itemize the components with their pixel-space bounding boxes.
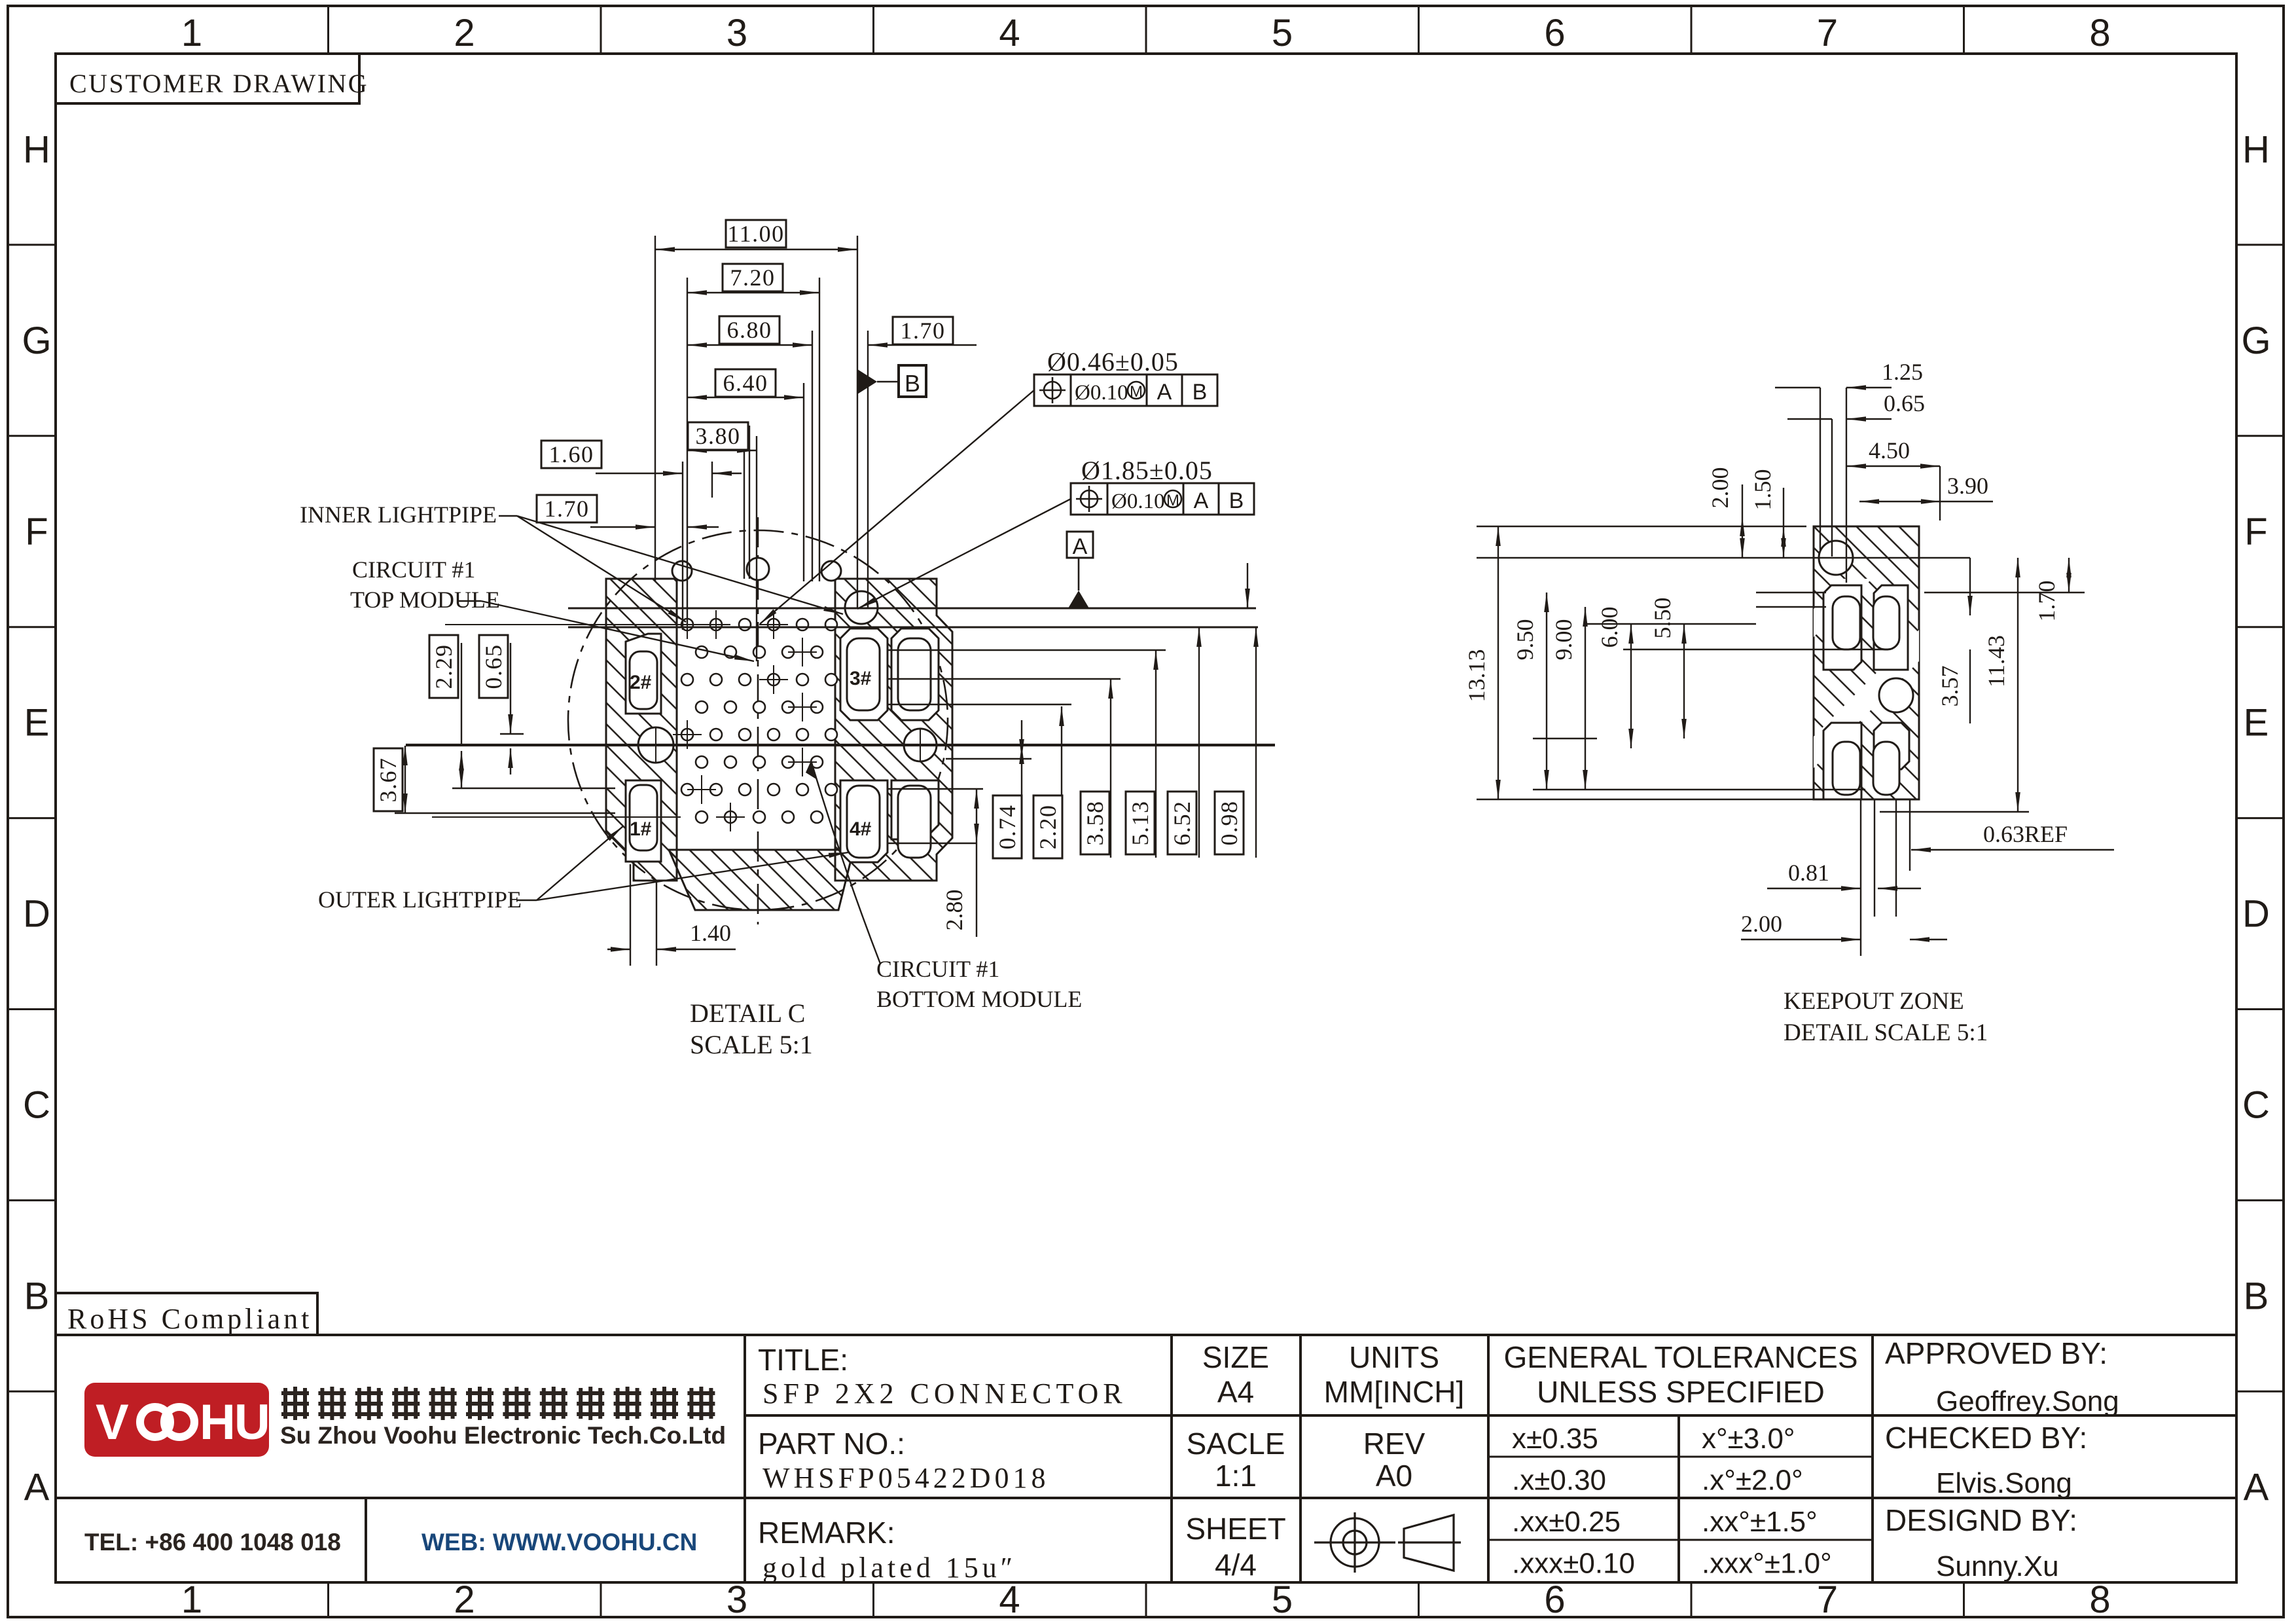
- svg-text:CIRCUIT #1: CIRCUIT #1: [352, 556, 475, 583]
- svg-text:3: 3: [726, 12, 747, 54]
- svg-text:4#: 4#: [850, 818, 872, 840]
- svg-text:B: B: [1229, 488, 1244, 513]
- svg-text:Elvis.Song: Elvis.Song: [1936, 1467, 2072, 1499]
- svg-text:CUSTOMER DRAWING: CUSTOMER DRAWING: [69, 69, 368, 98]
- svg-text:SHEET: SHEET: [1185, 1512, 1285, 1546]
- svg-text:2.29: 2.29: [431, 644, 457, 689]
- svg-text:SCALE 5:1: SCALE 5:1: [690, 1030, 813, 1059]
- svg-text:RoHS Compliant: RoHS Compliant: [67, 1303, 312, 1335]
- svg-text:6: 6: [1544, 12, 1565, 54]
- svg-text:2.20: 2.20: [1035, 805, 1061, 850]
- svg-text:F: F: [25, 511, 48, 553]
- svg-text:9.00: 9.00: [1551, 619, 1577, 661]
- svg-text:3.90: 3.90: [1947, 473, 1988, 499]
- svg-text:E: E: [2244, 702, 2269, 744]
- svg-text:4: 4: [999, 12, 1020, 54]
- svg-text:1.70: 1.70: [545, 496, 590, 522]
- svg-text:SFP 2X2 CONNECTOR: SFP 2X2 CONNECTOR: [762, 1377, 1127, 1410]
- svg-text:A0: A0: [1376, 1459, 1412, 1493]
- svg-text:Geoffrey.Song: Geoffrey.Song: [1936, 1385, 2119, 1417]
- svg-text:CIRCUIT #1: CIRCUIT #1: [876, 956, 999, 982]
- svg-text:2: 2: [454, 12, 475, 54]
- svg-text:x±0.35: x±0.35: [1512, 1423, 1598, 1455]
- svg-text:OUTER LIGHTPIPE: OUTER LIGHTPIPE: [318, 886, 522, 913]
- svg-text:D: D: [2242, 893, 2270, 936]
- svg-text:13.13: 13.13: [1463, 649, 1490, 702]
- svg-text:PART NO.:: PART NO.:: [758, 1427, 905, 1461]
- svg-text:3.57: 3.57: [1937, 666, 1963, 707]
- svg-text:7: 7: [1817, 12, 1838, 54]
- svg-text:A: A: [1194, 488, 1209, 513]
- svg-text:TITLE:: TITLE:: [758, 1343, 848, 1377]
- svg-text:6.40: 6.40: [723, 370, 768, 396]
- svg-text:TEL: +86 400 1048 018: TEL: +86 400 1048 018: [84, 1529, 341, 1556]
- svg-text:x°±3.0°: x°±3.0°: [1702, 1423, 1795, 1455]
- svg-text:.xxx°±1.0°: .xxx°±1.0°: [1702, 1548, 1832, 1580]
- svg-text:2.00: 2.00: [1707, 467, 1733, 509]
- svg-text:Su Zhou Voohu Electronic Tech.: Su Zhou Voohu Electronic Tech.Co.Ltd: [280, 1422, 726, 1449]
- svg-text:WEB: WWW.VOOHU.CN: WEB: WWW.VOOHU.CN: [422, 1529, 697, 1556]
- svg-text:1: 1: [181, 1578, 202, 1621]
- svg-text:SACLE: SACLE: [1187, 1427, 1285, 1461]
- svg-text:M: M: [1130, 383, 1143, 401]
- svg-text:7.20: 7.20: [730, 264, 776, 291]
- svg-text:0.65: 0.65: [480, 644, 507, 689]
- svg-text:DETAIL SCALE 5:1: DETAIL SCALE 5:1: [1784, 1019, 1988, 1046]
- svg-text:Sunny.Xu: Sunny.Xu: [1936, 1550, 2059, 1582]
- svg-text:7: 7: [1817, 1578, 1838, 1621]
- svg-text:G: G: [2241, 319, 2270, 362]
- svg-text:D: D: [23, 893, 50, 936]
- svg-text:SIZE: SIZE: [1202, 1340, 1269, 1374]
- svg-text:6.80: 6.80: [727, 317, 772, 343]
- svg-text:H: H: [2242, 128, 2270, 171]
- svg-text:A: A: [2244, 1466, 2269, 1508]
- svg-text:3: 3: [726, 1578, 747, 1621]
- svg-text:B: B: [24, 1275, 50, 1317]
- svg-text:1.40: 1.40: [690, 920, 731, 946]
- svg-text:3.80: 3.80: [696, 423, 741, 449]
- svg-text:8: 8: [2089, 12, 2110, 54]
- svg-text:Ø0.10: Ø0.10: [1075, 381, 1128, 405]
- svg-text:8: 8: [2089, 1578, 2110, 1621]
- svg-text:E: E: [24, 702, 50, 744]
- svg-text:REV: REV: [1363, 1427, 1426, 1461]
- svg-text:2#: 2#: [630, 672, 652, 693]
- svg-text:1#: 1#: [630, 818, 652, 840]
- svg-text:.xx±0.25: .xx±0.25: [1512, 1506, 1621, 1538]
- svg-text:1.70: 1.70: [901, 318, 946, 344]
- svg-text:2.00: 2.00: [1741, 911, 1782, 937]
- svg-text:1.60: 1.60: [549, 441, 594, 467]
- svg-text:B: B: [1193, 380, 1208, 405]
- svg-text:M: M: [1166, 492, 1179, 509]
- svg-text:UNLESS SPECIFIED: UNLESS SPECIFIED: [1537, 1375, 1825, 1409]
- svg-text:1.50: 1.50: [1749, 469, 1776, 511]
- svg-text:11.43: 11.43: [1983, 635, 2009, 687]
- svg-text:5.50: 5.50: [1649, 598, 1676, 639]
- svg-text:gold plated 15u″: gold plated 15u″: [762, 1552, 1016, 1584]
- svg-text:0.81: 0.81: [1788, 860, 1829, 886]
- svg-text:5.13: 5.13: [1127, 801, 1153, 846]
- svg-text:4.50: 4.50: [1869, 437, 1910, 464]
- svg-text:KEEPOUT ZONE: KEEPOUT ZONE: [1784, 988, 1964, 1015]
- svg-text:5: 5: [1272, 12, 1293, 54]
- svg-text:6: 6: [1544, 1578, 1565, 1621]
- svg-text:V: V: [96, 1395, 129, 1450]
- svg-text:DETAIL C: DETAIL C: [690, 998, 805, 1028]
- svg-text:GENERAL TOLERANCES: GENERAL TOLERANCES: [1503, 1340, 1857, 1374]
- svg-text:.xxx±0.10: .xxx±0.10: [1512, 1548, 1635, 1580]
- svg-text:WHSFP05422D018: WHSFP05422D018: [762, 1462, 1050, 1494]
- svg-text:H: H: [23, 128, 50, 171]
- svg-text:Ø0.10: Ø0.10: [1111, 490, 1165, 513]
- svg-text:5: 5: [1272, 1578, 1293, 1621]
- svg-text:TOP MODULE: TOP MODULE: [350, 587, 500, 613]
- svg-text:APPROVED BY:: APPROVED BY:: [1885, 1336, 2108, 1370]
- svg-text:.xx°±1.5°: .xx°±1.5°: [1702, 1506, 1818, 1538]
- svg-text:2: 2: [454, 1578, 475, 1621]
- svg-text:9.50: 9.50: [1512, 619, 1538, 661]
- svg-text:11.00: 11.00: [727, 221, 784, 247]
- svg-text:Ø1.85±0.05: Ø1.85±0.05: [1081, 456, 1213, 485]
- svg-text:UNITS: UNITS: [1349, 1340, 1439, 1374]
- svg-text:BOTTOM MODULE: BOTTOM MODULE: [876, 986, 1082, 1012]
- svg-text:0.74: 0.74: [994, 805, 1020, 850]
- svg-text:0.63REF: 0.63REF: [1983, 821, 2068, 847]
- svg-text:C: C: [2242, 1084, 2270, 1127]
- svg-text:1:1: 1:1: [1215, 1459, 1257, 1493]
- svg-text:3#: 3#: [850, 668, 872, 689]
- svg-text:F: F: [2244, 511, 2267, 553]
- svg-text:3.67: 3.67: [375, 757, 401, 803]
- svg-text:DESIGND BY:: DESIGND BY:: [1885, 1503, 2077, 1537]
- svg-text:3.58: 3.58: [1082, 801, 1108, 846]
- svg-text:A4: A4: [1217, 1375, 1254, 1409]
- svg-text:6.00: 6.00: [1596, 607, 1623, 648]
- svg-text:0.98: 0.98: [1216, 801, 1242, 846]
- svg-text:A: A: [24, 1466, 50, 1508]
- svg-text:2.80: 2.80: [941, 890, 967, 931]
- svg-text:4: 4: [999, 1578, 1020, 1621]
- svg-text:4/4: 4/4: [1215, 1548, 1257, 1582]
- svg-text:0.65: 0.65: [1884, 390, 1925, 416]
- svg-text:REMARK:: REMARK:: [758, 1516, 895, 1550]
- svg-text:CHECKED BY:: CHECKED BY:: [1885, 1421, 2087, 1455]
- svg-text:MM[INCH]: MM[INCH]: [1324, 1375, 1465, 1409]
- svg-text:HU: HU: [200, 1395, 269, 1450]
- svg-text:1: 1: [181, 12, 202, 54]
- svg-text:G: G: [22, 319, 51, 362]
- svg-text:B: B: [905, 370, 920, 397]
- svg-text:.x±0.30: .x±0.30: [1512, 1465, 1606, 1497]
- svg-text:.x°±2.0°: .x°±2.0°: [1702, 1465, 1803, 1497]
- svg-text:INNER LIGHTPIPE: INNER LIGHTPIPE: [300, 501, 497, 528]
- svg-text:A: A: [1073, 534, 1088, 559]
- svg-text:B: B: [2244, 1275, 2269, 1317]
- svg-text:1.25: 1.25: [1882, 359, 1923, 385]
- svg-text:C: C: [23, 1084, 50, 1127]
- svg-text:Ø0.46±0.05: Ø0.46±0.05: [1047, 347, 1179, 376]
- svg-text:6.52: 6.52: [1169, 801, 1195, 846]
- svg-text:A: A: [1157, 380, 1172, 405]
- svg-text:1.70: 1.70: [2034, 581, 2060, 622]
